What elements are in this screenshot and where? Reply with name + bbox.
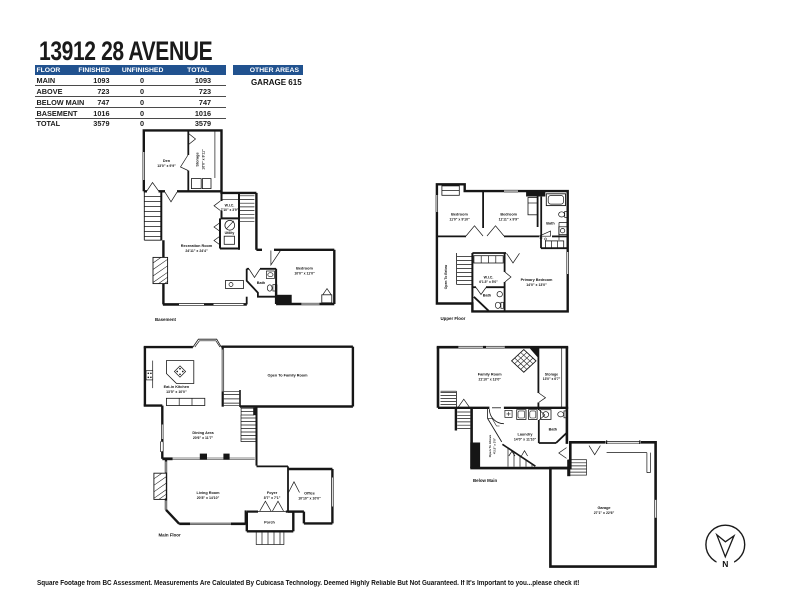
svg-text:11'0" x 9'10": 11'0" x 9'10" (449, 218, 470, 222)
svg-text:20'8" x 14'10": 20'8" x 14'10" (197, 496, 220, 500)
svg-text:Living Room: Living Room (197, 491, 221, 495)
svg-text:24'11" x 24'4": 24'11" x 24'4" (185, 249, 208, 253)
svg-text:Bedroom: Bedroom (451, 212, 468, 216)
svg-text:Bath: Bath (483, 294, 492, 298)
svg-text:Basement: Basement (155, 317, 177, 322)
svg-text:Open To Family Room: Open To Family Room (267, 374, 308, 378)
svg-text:Family Room: Family Room (478, 372, 502, 376)
svg-text:27'1" x 22'6": 27'1" x 22'6" (594, 511, 615, 515)
svg-text:Bath: Bath (549, 428, 558, 432)
svg-text:10'0" x 9'11": 10'0" x 9'11" (202, 149, 206, 170)
svg-text:8'7" x 7'1": 8'7" x 7'1" (264, 496, 281, 500)
svg-text:Bedroom: Bedroom (500, 212, 517, 216)
svg-text:Open To Below: Open To Below (444, 264, 448, 289)
svg-text:13'0" x 6'7": 13'0" x 6'7" (543, 377, 561, 381)
svg-text:Storage: Storage (545, 372, 558, 376)
svg-text:Recreation Room: Recreation Room (181, 244, 213, 248)
svg-text:14'0" x 11'10": 14'0" x 11'10" (514, 438, 537, 442)
svg-text:Bath: Bath (546, 222, 555, 226)
svg-text:21'10" x 13'0": 21'10" x 13'0" (478, 378, 501, 382)
svg-text:W.I.C.: W.I.C. (225, 203, 235, 207)
svg-text:Utility: Utility (225, 231, 235, 235)
svg-text:13'0" x 9'9": 13'0" x 9'9" (157, 164, 176, 168)
svg-text:13'5" x 10'0": 13'5" x 10'0" (166, 390, 187, 394)
svg-text:Laundry: Laundry (518, 433, 534, 437)
svg-text:Main Floor: Main Floor (159, 533, 181, 538)
svg-text:Bedroom: Bedroom (296, 266, 313, 270)
svg-text:Below Main: Below Main (473, 478, 497, 483)
svg-text:10'10" x 10'0": 10'10" x 10'0" (298, 497, 321, 501)
svg-text:20'6" x 11'7": 20'6" x 11'7" (193, 436, 214, 440)
svg-text:Bath: Bath (257, 281, 266, 285)
svg-text:Eat-in Kitchen: Eat-in Kitchen (164, 385, 190, 389)
svg-text:11'11" x 9'9": 11'11" x 9'9" (499, 218, 520, 222)
svg-text:Foyer: Foyer (267, 491, 278, 495)
svg-text:W.I.C.: W.I.C. (484, 276, 494, 280)
svg-text:Porch: Porch (264, 521, 275, 525)
svg-text:7'10" x 3'9": 7'10" x 3'9" (221, 208, 239, 212)
svg-text:14'0" x 13'0": 14'0" x 13'0" (526, 283, 547, 287)
svg-text:6'1.5" x 5'0": 6'1.5" x 5'0" (479, 280, 498, 284)
svg-text:4'2.5" x 3'0": 4'2.5" x 3'0" (492, 437, 496, 454)
svg-text:Garage: Garage (597, 506, 610, 510)
svg-text:Primary Bedroom: Primary Bedroom (521, 278, 553, 282)
svg-text:Upper Floor: Upper Floor (441, 316, 466, 321)
svg-text:10'0" x 11'0": 10'0" x 11'0" (294, 272, 315, 276)
svg-text:Storage: Storage (196, 152, 200, 166)
svg-text:N: N (722, 559, 728, 569)
svg-text:Office: Office (304, 492, 315, 496)
svg-text:Dining Area: Dining Area (192, 431, 214, 435)
svg-text:Den: Den (163, 159, 171, 163)
